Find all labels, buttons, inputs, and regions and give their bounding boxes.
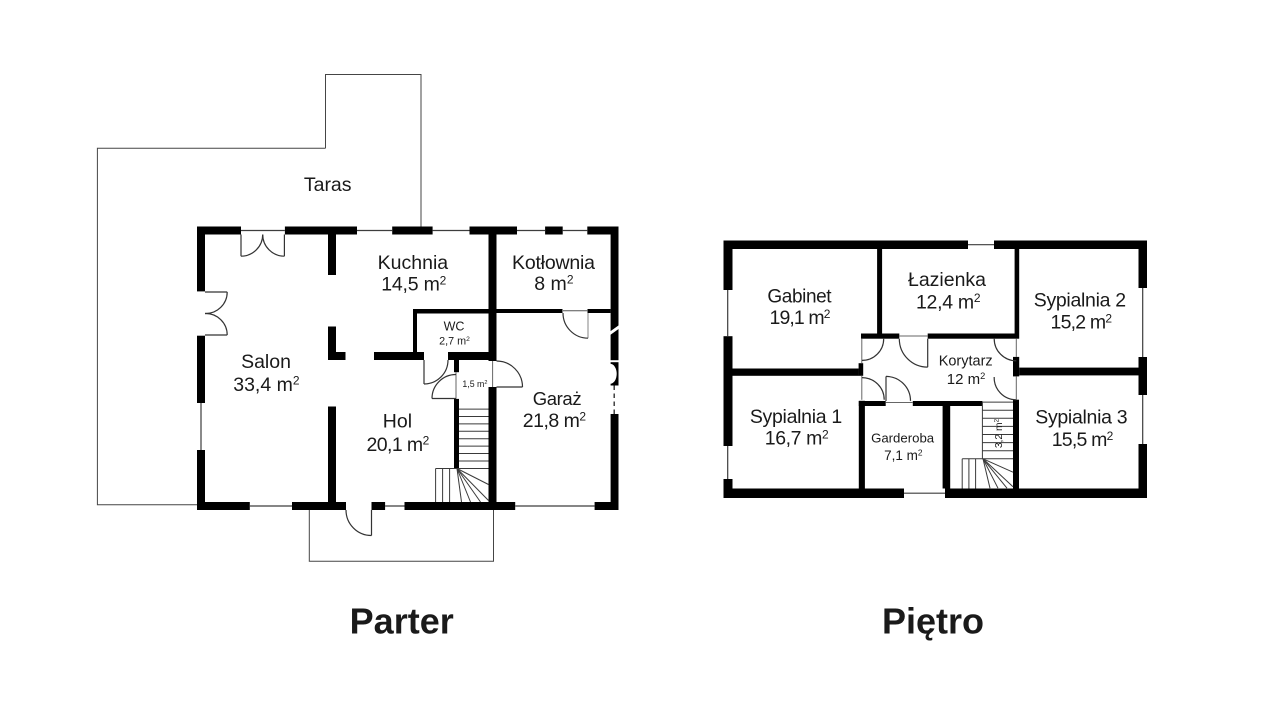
svg-text:16,7 m2: 16,7 m2 [765,427,829,449]
svg-text:3,2 m2: 3,2 m2 [994,418,1005,448]
svg-text:Sypialnia 1: Sypialnia 1 [750,406,842,428]
svg-text:Salon: Salon [241,351,291,373]
svg-text:20,1 m2: 20,1 m2 [367,434,430,456]
svg-text:Garderoba: Garderoba [871,431,935,446]
svg-text:21,8 m2: 21,8 m2 [523,410,587,432]
svg-text:Garaż: Garaż [533,388,582,409]
svg-text:Piętro: Piętro [882,601,984,642]
svg-text:Gabinet: Gabinet [767,287,832,308]
svg-text:7,1 m2: 7,1 m2 [884,448,923,463]
svg-text:Parter: Parter [350,601,454,642]
svg-text:Taras: Taras [304,174,352,196]
svg-text:15,2 m2: 15,2 m2 [1051,311,1113,333]
svg-text:WC: WC [444,319,465,333]
svg-text:Sypialnia 2: Sypialnia 2 [1034,290,1126,312]
svg-text:Łazienka: Łazienka [908,269,986,291]
svg-text:33,4 m2: 33,4 m2 [233,374,300,396]
svg-text:Sypialnia 3: Sypialnia 3 [1035,406,1127,428]
svg-text:19,1 m2: 19,1 m2 [770,307,831,329]
svg-text:2,7 m2: 2,7 m2 [439,335,470,347]
svg-text:12 m2: 12 m2 [947,371,986,388]
svg-text:1,5 m2: 1,5 m2 [462,379,487,389]
svg-text:Korytarz: Korytarz [939,353,993,369]
svg-text:12,4 m2: 12,4 m2 [916,291,981,313]
svg-text:14,5 m2: 14,5 m2 [381,273,446,295]
svg-text:Hol: Hol [383,410,412,432]
svg-text:15,5 m2: 15,5 m2 [1052,429,1114,451]
svg-text:Kuchnia: Kuchnia [378,252,449,274]
svg-text:Kotłownia: Kotłownia [512,252,595,274]
